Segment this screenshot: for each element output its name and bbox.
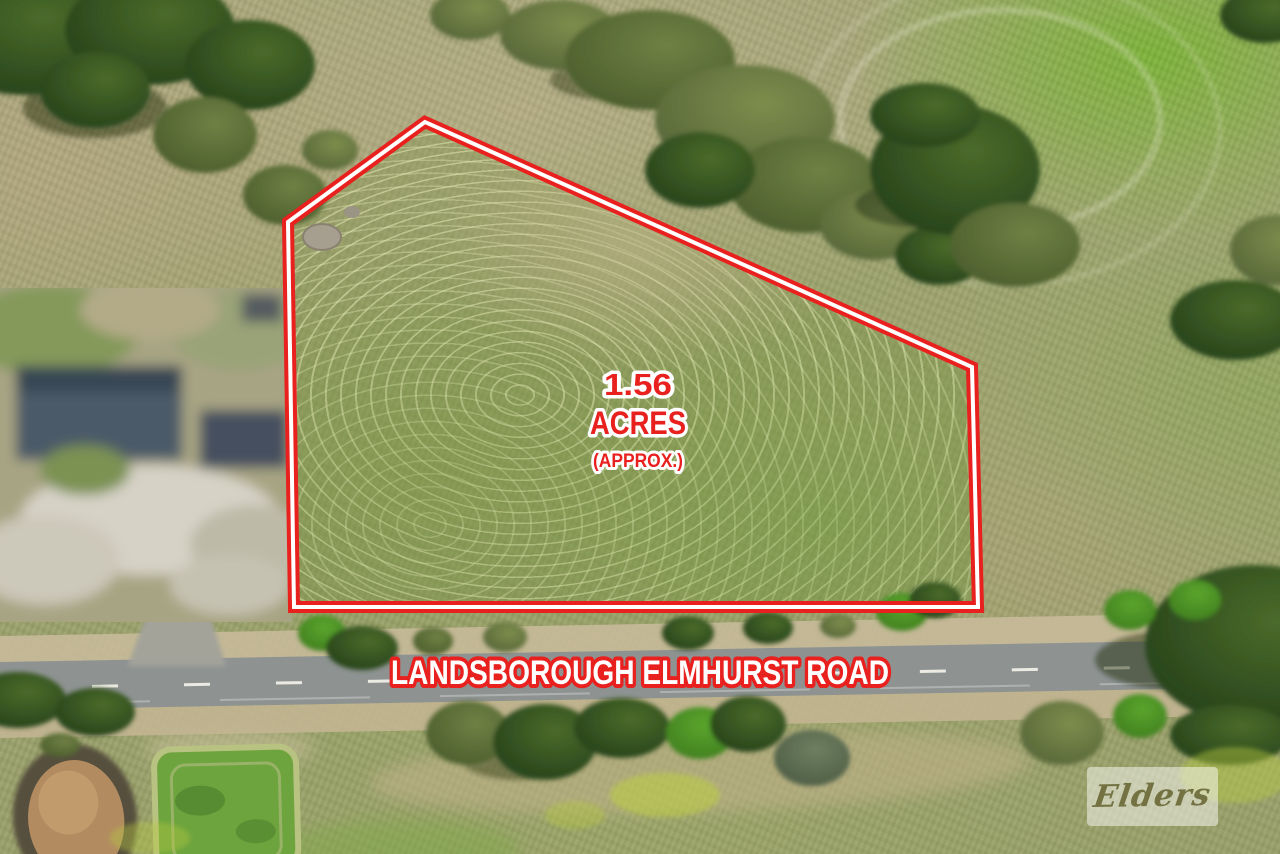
tree — [302, 130, 358, 170]
tree — [574, 698, 670, 758]
acreage-value: 1.56 — [604, 367, 672, 402]
acreage-unit: ACRES — [590, 405, 686, 441]
house-privacy-blur — [0, 278, 320, 632]
tree — [1020, 701, 1104, 765]
tree — [743, 612, 793, 644]
tree — [1104, 590, 1156, 630]
tree — [413, 627, 453, 655]
tree — [153, 97, 257, 173]
road-name-label: LANDSBOROUGH ELMHURST ROAD — [391, 654, 889, 692]
tree — [1170, 280, 1280, 360]
tree — [1113, 694, 1167, 738]
tree — [243, 165, 327, 225]
tree — [40, 52, 150, 128]
elders-watermark: Elders — [1087, 767, 1218, 826]
tree — [870, 83, 980, 147]
tree — [326, 626, 398, 670]
tree — [40, 733, 80, 757]
tree — [1230, 215, 1280, 285]
acreage-label: 1.56 ACRES (APPROX.) — [590, 367, 686, 472]
tree — [1169, 580, 1221, 620]
elders-logo-text: Elders — [1092, 780, 1213, 813]
tree — [774, 730, 850, 786]
tree — [645, 132, 755, 208]
tree — [820, 614, 856, 638]
tree — [710, 696, 786, 752]
aerial-property-photo: 1.56 ACRES (APPROX.) LANDSBOROUGH ELMHUR… — [0, 0, 1280, 854]
tree — [662, 616, 714, 650]
driveway — [128, 616, 226, 666]
tree — [1220, 0, 1280, 43]
tree — [483, 622, 527, 652]
tree — [430, 0, 510, 40]
acreage-qualifier: (APPROX.) — [593, 451, 683, 472]
photo-detail-layer: 1.56 ACRES (APPROX.) LANDSBOROUGH ELMHUR… — [0, 0, 1280, 854]
tree — [950, 203, 1080, 287]
tree — [185, 20, 315, 110]
tree — [55, 688, 135, 736]
